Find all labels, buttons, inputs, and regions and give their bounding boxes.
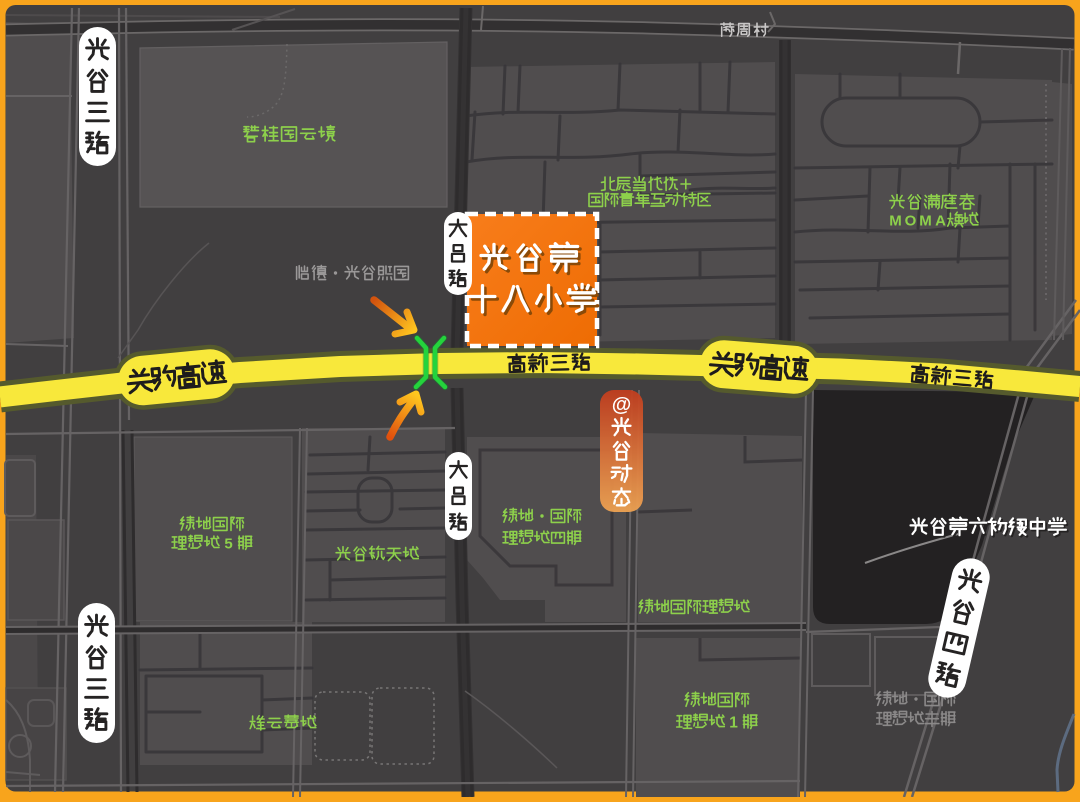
svg-text:@: @: [612, 394, 632, 416]
svg-text:5: 5: [224, 535, 232, 552]
svg-text:M: M: [889, 212, 902, 229]
svg-text:A: A: [935, 212, 946, 229]
svg-text:O: O: [905, 212, 917, 229]
svg-text:M: M: [919, 212, 932, 229]
svg-text:1: 1: [729, 715, 738, 732]
